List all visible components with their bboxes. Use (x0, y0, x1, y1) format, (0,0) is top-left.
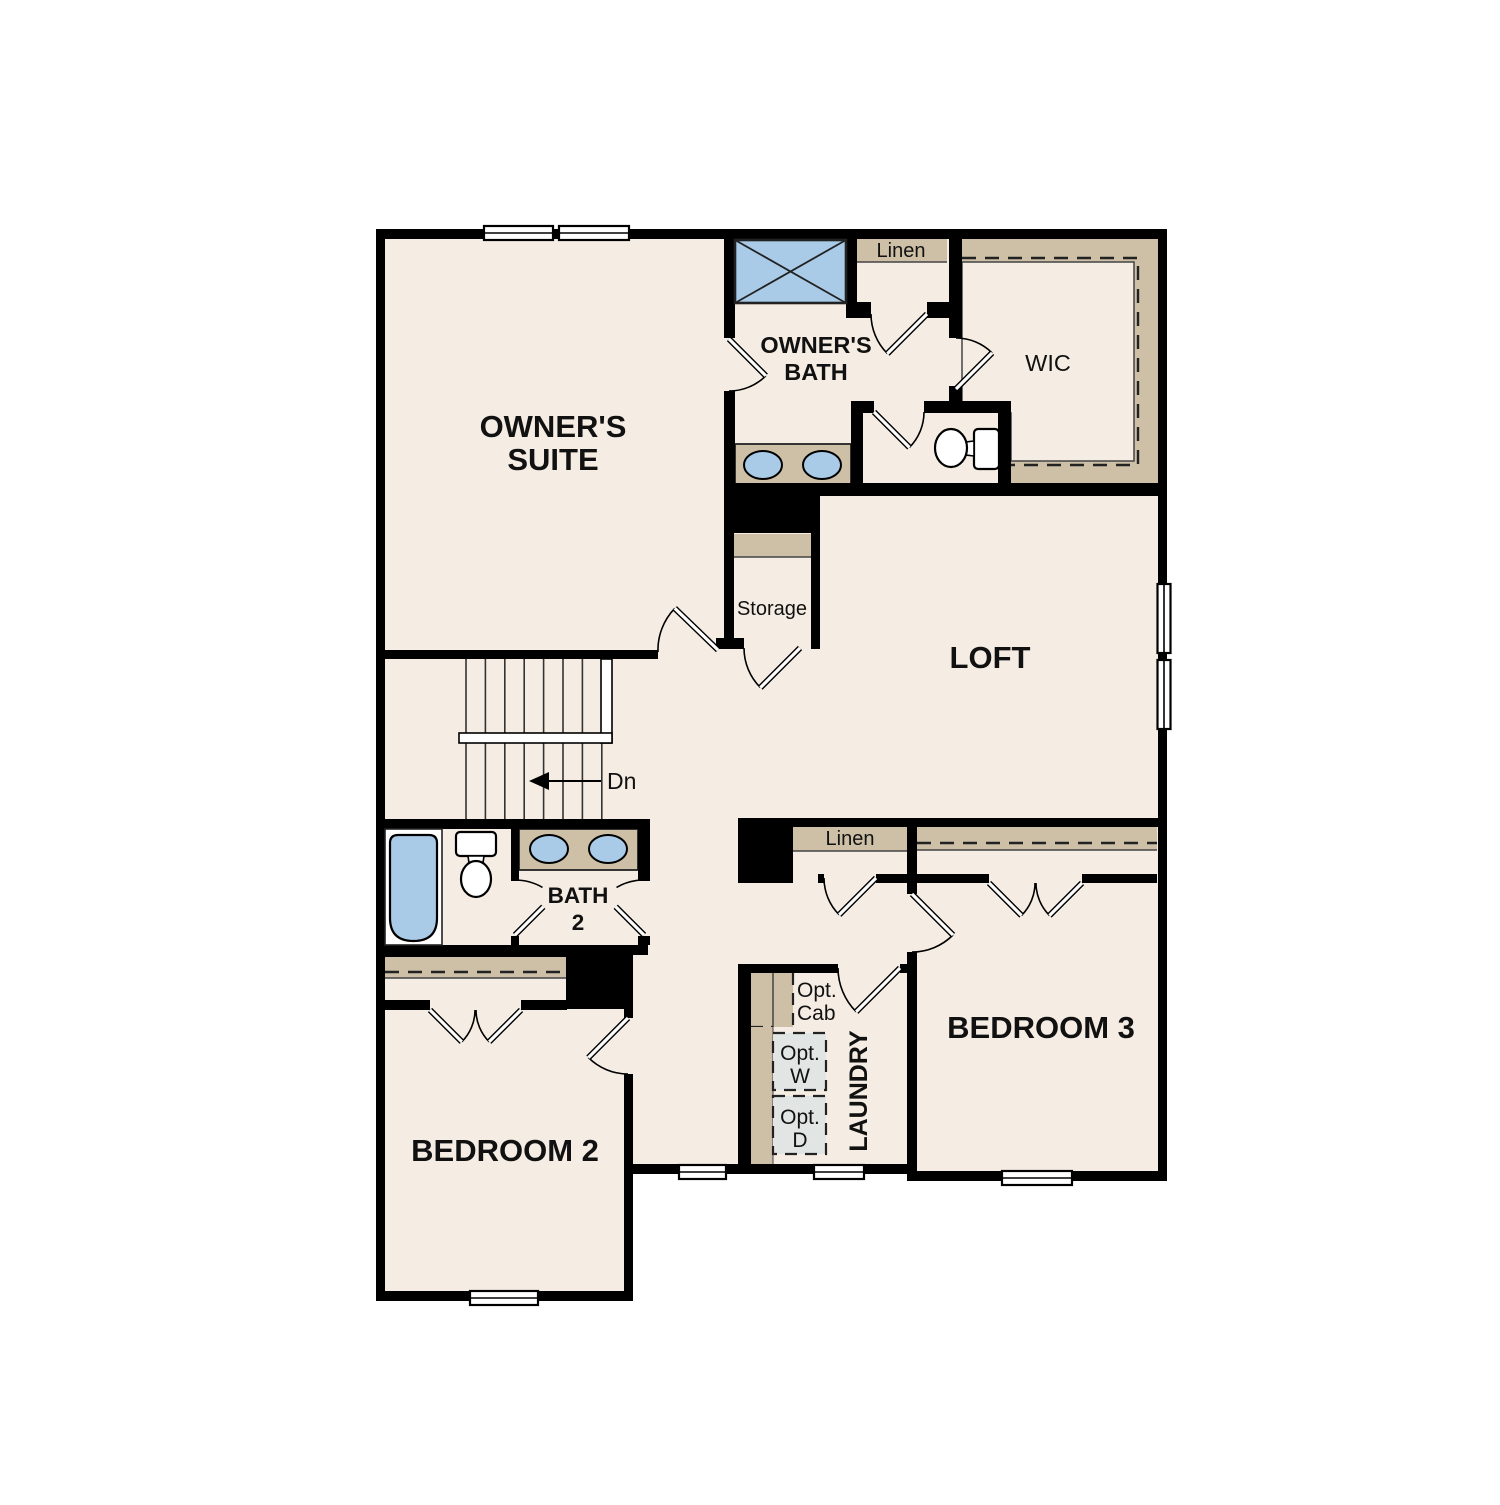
svg-text:BATH: BATH (548, 883, 609, 908)
svg-text:Storage: Storage (737, 598, 807, 620)
svg-text:Linen: Linen (826, 828, 875, 850)
svg-text:Cab: Cab (797, 1002, 836, 1025)
svg-text:W: W (790, 1065, 810, 1088)
svg-text:Opt.: Opt. (797, 979, 837, 1002)
svg-text:Dn: Dn (607, 768, 636, 794)
svg-text:BEDROOM 2: BEDROOM 2 (411, 1133, 599, 1168)
svg-text:2: 2 (572, 910, 585, 935)
svg-text:Opt.: Opt. (780, 1106, 820, 1129)
svg-text:Opt.: Opt. (780, 1042, 820, 1065)
svg-text:LAUNDRY: LAUNDRY (845, 1030, 873, 1152)
svg-text:OWNER'S: OWNER'S (480, 409, 627, 444)
svg-text:LOFT: LOFT (950, 640, 1031, 675)
svg-text:Linen: Linen (877, 240, 926, 262)
svg-text:BEDROOM 3: BEDROOM 3 (947, 1010, 1135, 1045)
svg-text:SUITE: SUITE (507, 442, 598, 477)
svg-text:OWNER'S: OWNER'S (760, 332, 871, 358)
svg-text:D: D (792, 1129, 807, 1152)
svg-text:WIC: WIC (1025, 350, 1071, 376)
svg-text:BATH: BATH (784, 359, 848, 385)
